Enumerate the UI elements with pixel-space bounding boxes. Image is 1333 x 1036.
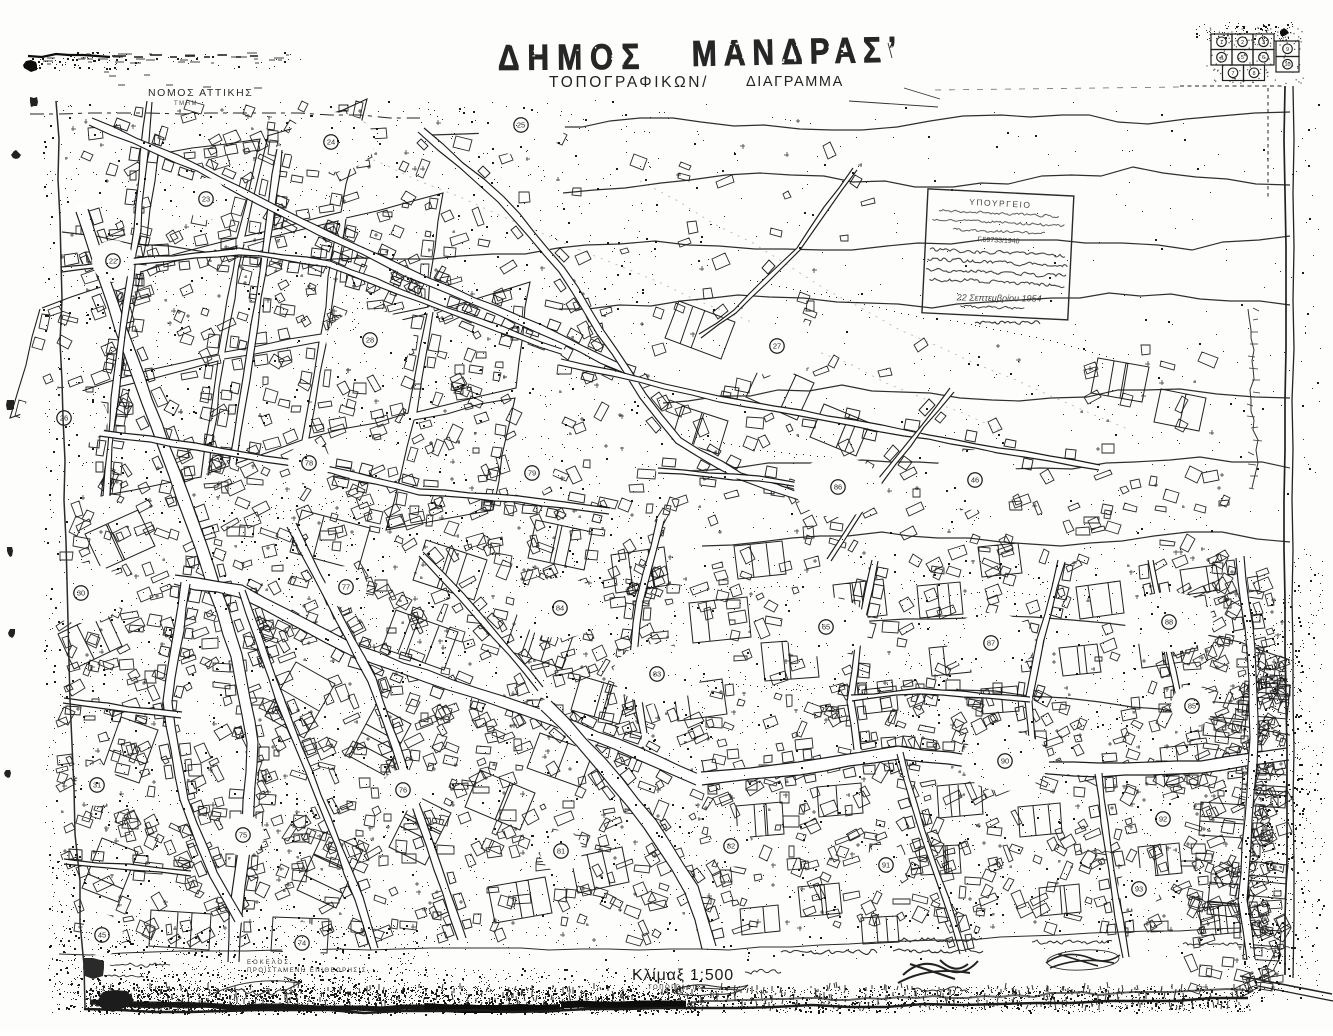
svg-text:86: 86 [834,483,842,492]
svg-text:ΠΡΟΪΣΤΑΜΕΝΗ ΕΠΙΘΕΩΡΗΣΙΣ: ΠΡΟΪΣΤΑΜΕΝΗ ΕΠΙΘΕΩΡΗΣΙΣ [247,967,367,974]
svg-text:84: 84 [556,604,564,613]
svg-text:75: 75 [239,831,247,840]
svg-text:87: 87 [987,639,995,648]
svg-text:ΝΟΜΟΣ ΑΤΤΙΚΗΣ: ΝΟΜΟΣ ΑΤΤΙΚΗΣ [148,87,253,99]
svg-text:8: 8 [1252,71,1255,77]
svg-text:76: 76 [399,786,407,795]
svg-text:ΤΜΗΜ: ΤΜΗΜ [174,101,198,107]
svg-text:81: 81 [557,847,565,856]
svg-text:Κλίμαξ 1:500: Κλίμαξ 1:500 [632,967,734,984]
svg-text:90: 90 [1001,757,1009,766]
svg-text:46: 46 [971,476,979,485]
svg-text:77: 77 [342,583,350,592]
svg-text:92: 92 [1159,815,1167,824]
svg-text:74: 74 [298,939,306,948]
svg-text:ΤΟΠΟΓΡΑΦΙΚΑ: ΤΟΠΟΓΡΑΦΙΚΑ [648,985,707,991]
svg-text:ΔΙΑΓΡΑΜΜΑ: ΔΙΑΓΡΑΜΜΑ [746,74,844,90]
svg-text:79: 79 [528,469,536,478]
svg-text:22: 22 [109,257,117,266]
svg-text:ΤΟΠΟΓΡΑΦΙΚΩΝ/: ΤΟΠΟΓΡΑΦΙΚΩΝ/ [549,74,709,91]
svg-text:ΕΟΚΕΛΟΣ: ΕΟΚΕΛΟΣ [247,960,290,966]
svg-text:28: 28 [366,336,374,345]
svg-text:78: 78 [305,459,313,468]
svg-text:45: 45 [98,931,106,940]
svg-text:22 Σεπτεμβρίου 1954: 22 Σεπτεμβρίου 1954 [956,292,1042,303]
svg-text:65: 65 [822,623,830,632]
svg-text:24: 24 [327,138,335,147]
svg-text:23: 23 [202,195,210,204]
svg-text:9: 9 [1286,47,1289,53]
svg-text:2: 2 [1241,40,1244,46]
svg-text:85: 85 [1188,702,1196,711]
svg-text:25: 25 [517,121,525,130]
svg-text:30: 30 [77,589,85,598]
svg-text:7: 7 [1231,71,1234,77]
svg-text:5: 5 [1241,55,1244,61]
svg-text:ΔΗΜΟΣ: ΔΗΜΟΣ [498,37,648,79]
svg-text:93: 93 [1135,885,1143,894]
svg-text:26: 26 [60,414,68,423]
svg-text:82: 82 [727,842,735,851]
svg-text:91: 91 [882,861,890,870]
svg-text:ΜΑΝΔΡΑΣ’: ΜΑΝΔΡΑΣ’ [691,30,903,75]
svg-text:88: 88 [1165,618,1173,627]
svg-text:27: 27 [773,342,781,351]
